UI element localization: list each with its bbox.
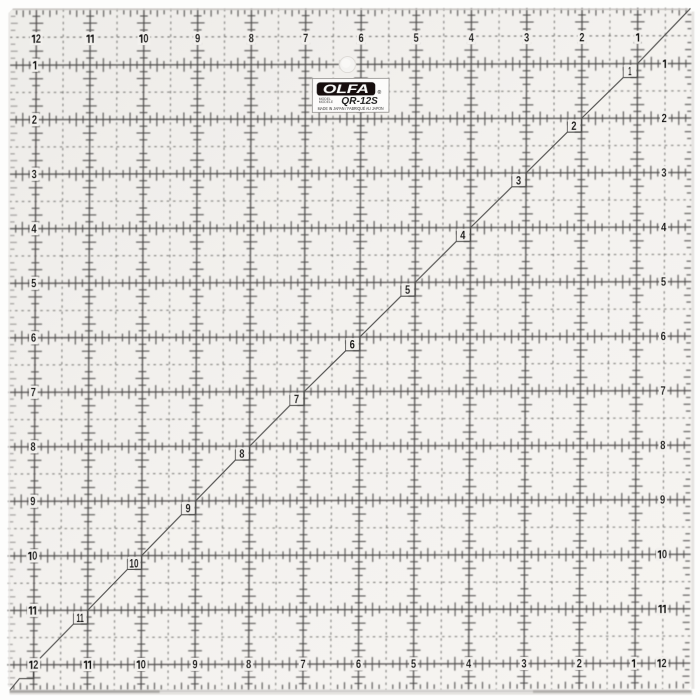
svg-text:5: 5 bbox=[411, 659, 417, 671]
svg-text:OLFA: OLFA bbox=[323, 82, 369, 96]
svg-text:7: 7 bbox=[294, 394, 299, 406]
svg-text:6: 6 bbox=[350, 340, 355, 352]
svg-text:0: 0 bbox=[32, 551, 37, 563]
svg-text:2: 2 bbox=[33, 660, 38, 672]
svg-text:3: 3 bbox=[521, 659, 526, 671]
svg-text:7: 7 bbox=[303, 33, 308, 45]
svg-text:0: 0 bbox=[141, 660, 146, 672]
svg-text:10: 10 bbox=[129, 558, 138, 570]
svg-text:MODELE: MODELE bbox=[319, 100, 334, 104]
svg-text:7: 7 bbox=[300, 659, 305, 671]
svg-text:2: 2 bbox=[579, 33, 584, 45]
svg-text:2: 2 bbox=[661, 658, 666, 670]
svg-text:9: 9 bbox=[192, 659, 197, 671]
svg-text:8: 8 bbox=[246, 659, 252, 671]
svg-text:8: 8 bbox=[249, 33, 255, 45]
svg-text:9: 9 bbox=[195, 33, 200, 45]
svg-text:0: 0 bbox=[143, 34, 148, 46]
svg-text:MADE IN JAPAN / FABRIQUÉ AU JA: MADE IN JAPAN / FABRIQUÉ AU JAPON bbox=[318, 106, 384, 111]
svg-text:5: 5 bbox=[661, 277, 667, 289]
svg-text:5: 5 bbox=[405, 285, 411, 297]
svg-text:2: 2 bbox=[577, 659, 582, 671]
svg-text:9: 9 bbox=[185, 504, 190, 516]
svg-text:0: 0 bbox=[662, 549, 667, 561]
svg-text:6: 6 bbox=[31, 333, 36, 345]
svg-text:4: 4 bbox=[466, 659, 472, 671]
svg-text:8: 8 bbox=[239, 449, 245, 461]
svg-text:5: 5 bbox=[414, 33, 420, 45]
svg-text:5: 5 bbox=[31, 278, 37, 290]
svg-text:8: 8 bbox=[660, 440, 666, 452]
svg-text:2: 2 bbox=[571, 121, 576, 133]
svg-text:2: 2 bbox=[662, 113, 667, 125]
svg-text:3: 3 bbox=[524, 33, 529, 45]
svg-text:4: 4 bbox=[31, 224, 37, 236]
svg-text:3: 3 bbox=[661, 168, 666, 180]
svg-text:4: 4 bbox=[469, 33, 475, 45]
svg-text:4: 4 bbox=[460, 230, 466, 242]
svg-text:9: 9 bbox=[30, 496, 35, 508]
svg-text:6: 6 bbox=[661, 331, 666, 343]
svg-text:7: 7 bbox=[31, 387, 36, 399]
svg-text:®: ® bbox=[378, 89, 382, 96]
svg-text:3: 3 bbox=[516, 176, 521, 188]
svg-text:9: 9 bbox=[660, 495, 665, 507]
svg-text:8: 8 bbox=[30, 442, 36, 454]
svg-text:1: 1 bbox=[628, 66, 632, 78]
svg-text:6: 6 bbox=[358, 33, 363, 45]
svg-text:11: 11 bbox=[76, 613, 84, 625]
svg-text:2: 2 bbox=[32, 115, 37, 127]
svg-text:4: 4 bbox=[661, 222, 667, 234]
svg-text:2: 2 bbox=[36, 34, 41, 46]
svg-text:6: 6 bbox=[356, 659, 361, 671]
svg-text:3: 3 bbox=[32, 169, 37, 181]
svg-text:7: 7 bbox=[660, 386, 665, 398]
